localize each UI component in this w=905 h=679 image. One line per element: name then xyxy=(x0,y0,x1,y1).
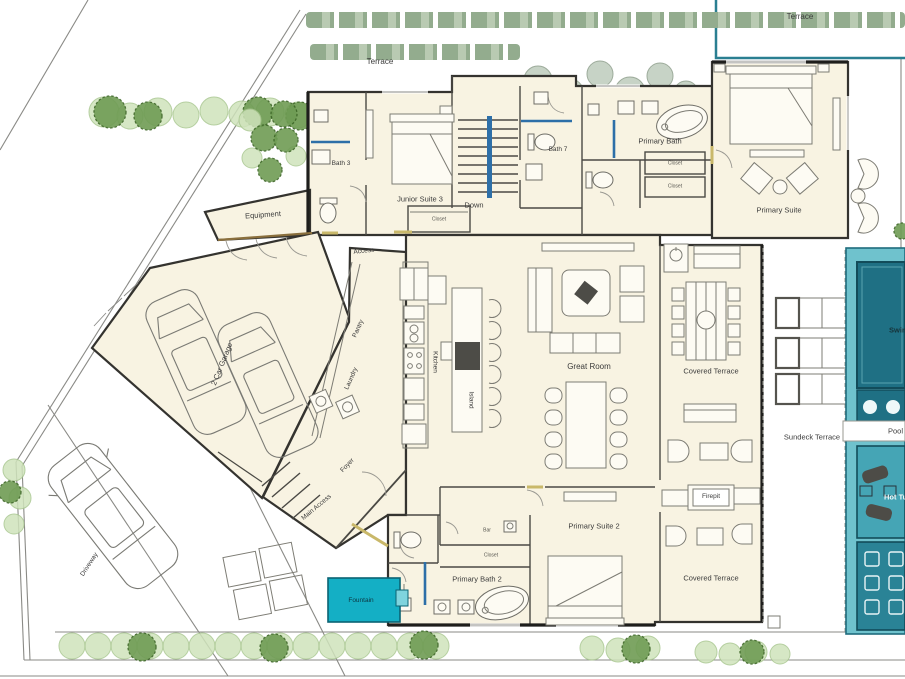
outdoor-chair-icon xyxy=(666,526,686,546)
outdoor-chair-icon xyxy=(731,440,752,462)
console-icon xyxy=(542,243,634,251)
room-label-covered-terrace-upper: Covered Terrace xyxy=(683,367,738,375)
hood-cabinet-icon xyxy=(428,276,446,304)
bed-icon xyxy=(546,556,624,625)
label-pool: Pool xyxy=(888,427,903,435)
room-label-terrace-upper-right: Terrace xyxy=(787,13,814,21)
label-fountain: Fountain xyxy=(348,598,373,605)
outdoor-table-icon xyxy=(700,443,728,460)
label-swimming-pool: Swimming Pool xyxy=(889,326,905,334)
outdoor-table-icon xyxy=(697,528,723,545)
sink-icon xyxy=(534,92,548,104)
prep-sink-icon xyxy=(441,342,452,360)
oven-icon xyxy=(404,378,424,400)
cabinet-icon xyxy=(404,404,424,420)
room-label-terrace: Terrace xyxy=(367,58,394,66)
range-icon xyxy=(404,348,424,374)
toilet-icon xyxy=(528,134,534,150)
hedge-row xyxy=(310,44,520,60)
lounger-icons xyxy=(776,298,846,404)
stepping-stones xyxy=(223,542,308,621)
spa-deck xyxy=(857,542,905,630)
outdoor-chair-icon xyxy=(732,524,752,544)
dishwasher-icon xyxy=(402,424,426,444)
sink-icon xyxy=(618,101,634,114)
bed-icon xyxy=(390,114,454,184)
shower-icon xyxy=(526,164,542,180)
label-bar: Bar xyxy=(483,529,491,534)
dresser-icon xyxy=(366,110,373,158)
sink-icon xyxy=(314,110,328,122)
hedge-row xyxy=(306,12,905,28)
utility-box-icon xyxy=(768,616,780,628)
sink-icon xyxy=(312,150,330,164)
room-label-closet: Closet xyxy=(484,554,498,559)
label-firepit: Firepit xyxy=(702,494,720,501)
sink-icon xyxy=(588,104,599,115)
cabinet-icon xyxy=(404,306,424,319)
car-icon xyxy=(36,433,189,600)
room-label-primary-bath-2: Primary Bath 2 xyxy=(452,575,502,583)
sink-icon xyxy=(434,600,450,614)
room-label-bath-7: Bath 7 xyxy=(549,147,568,154)
armchair-icon xyxy=(620,266,644,292)
toilet-icon xyxy=(394,532,400,548)
room-label-primary-suite: Primary Suite xyxy=(756,206,801,214)
cooktop-icon xyxy=(455,342,480,370)
room-label-great-room: Great Room xyxy=(567,363,611,371)
room-label-closet: Closet xyxy=(432,218,446,223)
stair-rail xyxy=(487,116,492,198)
sink-icon xyxy=(642,101,658,114)
label-island: Island xyxy=(467,391,474,408)
sink-icon xyxy=(458,600,474,614)
label-stairs-down: Down xyxy=(464,201,483,209)
room-label-sundeck-terrace: Sundeck Terrace xyxy=(784,433,840,441)
pool-complex xyxy=(843,248,905,634)
room-label-primary-bath: Primary Bath xyxy=(638,137,681,145)
terrace-upper-right-area xyxy=(716,0,905,58)
patio-chair-icons xyxy=(851,159,878,233)
outdoor-console-icon xyxy=(694,246,740,268)
outdoor-chair-icon xyxy=(668,440,689,462)
room-label-junior-suite-3: Junior Suite 3 xyxy=(397,195,443,203)
sofa-icon xyxy=(528,268,552,332)
room-label-closet: Closet xyxy=(668,162,682,167)
room-label-covered-terrace-lower: Covered Terrace xyxy=(683,574,738,582)
armchair-icon xyxy=(620,296,644,322)
bed-icon xyxy=(726,66,816,157)
dresser-icon xyxy=(564,492,616,501)
room-label-closet: Closet xyxy=(668,185,682,190)
room-label-primary-suite-2: Primary Suite 2 xyxy=(568,522,619,530)
room-label-kitchen: Kitchen xyxy=(431,351,438,373)
room-label-bath-3: Bath 3 xyxy=(332,161,351,168)
label-hot-tub: Hot Tub xyxy=(884,493,905,501)
outdoor-sofa-icon xyxy=(684,404,736,422)
sofa-icon xyxy=(550,333,620,353)
floor-plan-canvas: Terrace Terrace Bath 3 Junior Suite 3 Cl… xyxy=(0,0,905,679)
toilet-icon xyxy=(586,172,592,188)
